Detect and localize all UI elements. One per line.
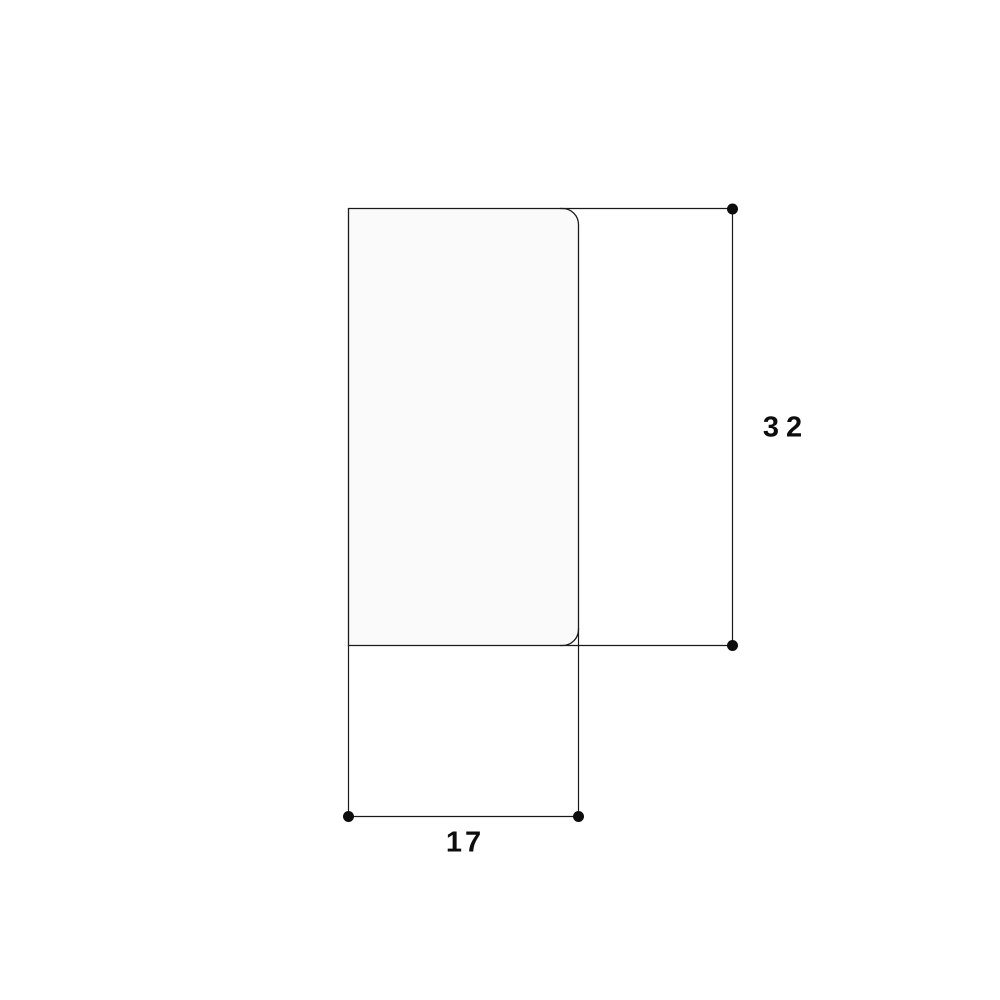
width-dimension-label: 17 (446, 829, 484, 858)
technical-drawing-canvas: 32 17 (0, 0, 1000, 1000)
profile-shape (349, 209, 579, 646)
dimension-endpoint-dot-top-right (727, 204, 738, 215)
height-dimension-label: 32 (763, 414, 809, 443)
dimension-endpoint-dot-bottom-right (727, 640, 738, 651)
dimension-drawing (0, 0, 1000, 1000)
dimension-endpoint-dot-bottom-left (343, 811, 354, 822)
dimension-endpoint-dot-bottom-mid (573, 811, 584, 822)
